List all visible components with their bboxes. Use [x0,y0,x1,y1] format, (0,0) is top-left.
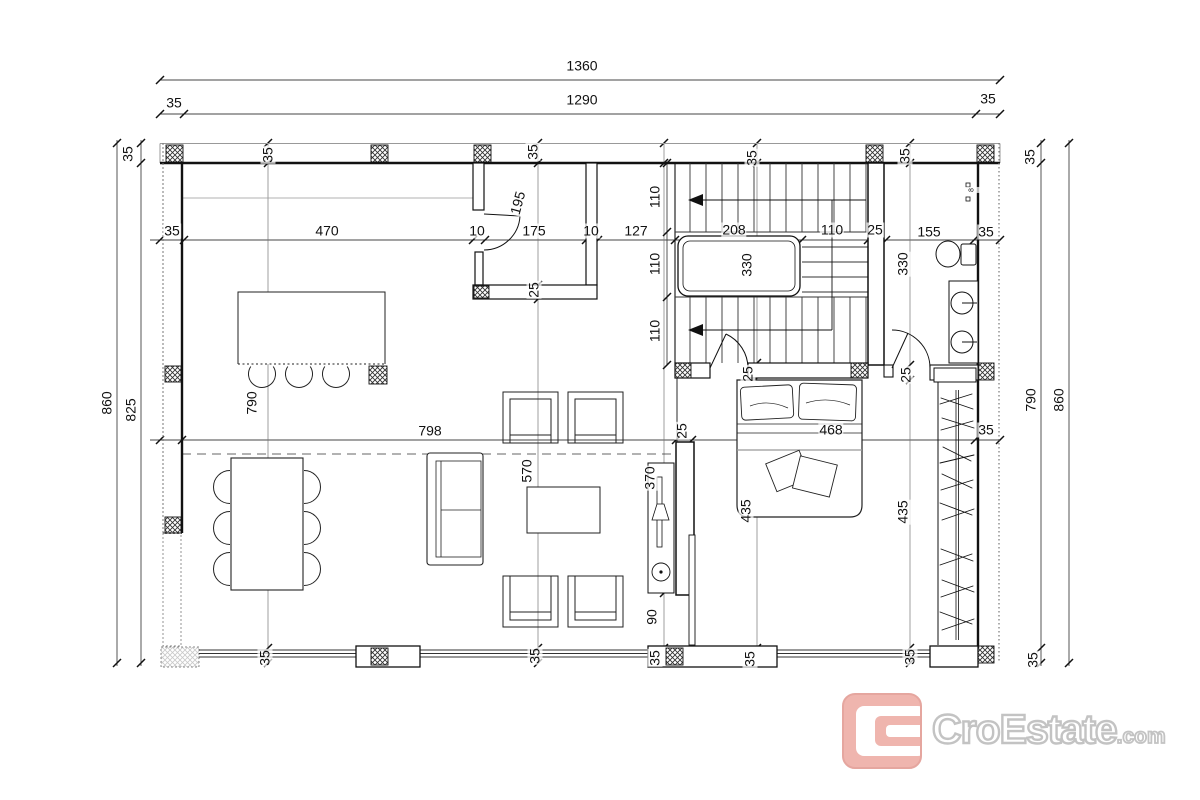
switch-icon [966,183,970,201]
bottom-wall [161,646,978,667]
hanging-clothes-icon [940,394,974,630]
bedroom-door-icon [710,334,748,368]
dining-table [231,458,303,590]
column-icon [474,286,489,298]
kitchen-island [238,292,387,388]
column-icon [666,648,683,665]
column-icon [165,366,181,382]
sliding-door-panel [689,535,695,645]
tv-wall [648,378,695,645]
wardrobe [934,368,976,645]
floor-plan-page: 1360129035353586082535790860353547010175… [0,0,1200,800]
column-icon [371,648,388,665]
vestibule [473,163,597,299]
bedroom-top-wall [675,334,868,378]
column-icon [977,363,994,380]
bathroom-door-icon [892,330,930,368]
logo-tld: .com [1117,725,1166,748]
sofa [427,453,483,565]
column-icon [165,517,181,533]
dining-set [214,458,321,590]
bar-stool-icon [249,367,350,388]
top-wall [160,144,1000,164]
left-wall [163,143,182,646]
column-icon [675,363,691,378]
bathroom-left-wall [868,163,884,365]
toilet-icon [936,241,976,267]
coffee-table [527,487,600,533]
wardrobe-shelf [934,368,976,382]
croestate-logo-icon [842,693,922,769]
entry-door-icon [484,214,520,250]
living-room [427,392,623,627]
glass-wall [199,650,930,657]
croestate-logo: CroEstate.com [842,688,1198,772]
logo-brand: CroEstate [932,706,1117,752]
bedroom [737,380,862,517]
column-icon [851,363,868,378]
bathroom [884,183,978,380]
right-wall [977,143,999,663]
column-icon [369,366,387,384]
column-icon [166,145,994,162]
floor-plan-drawing [0,0,1200,800]
croestate-logo-text: CroEstate.com [932,688,1166,772]
washbasin-counter [949,281,978,363]
column-icon [977,646,994,663]
staircase [675,163,868,363]
stair-void [678,236,800,296]
